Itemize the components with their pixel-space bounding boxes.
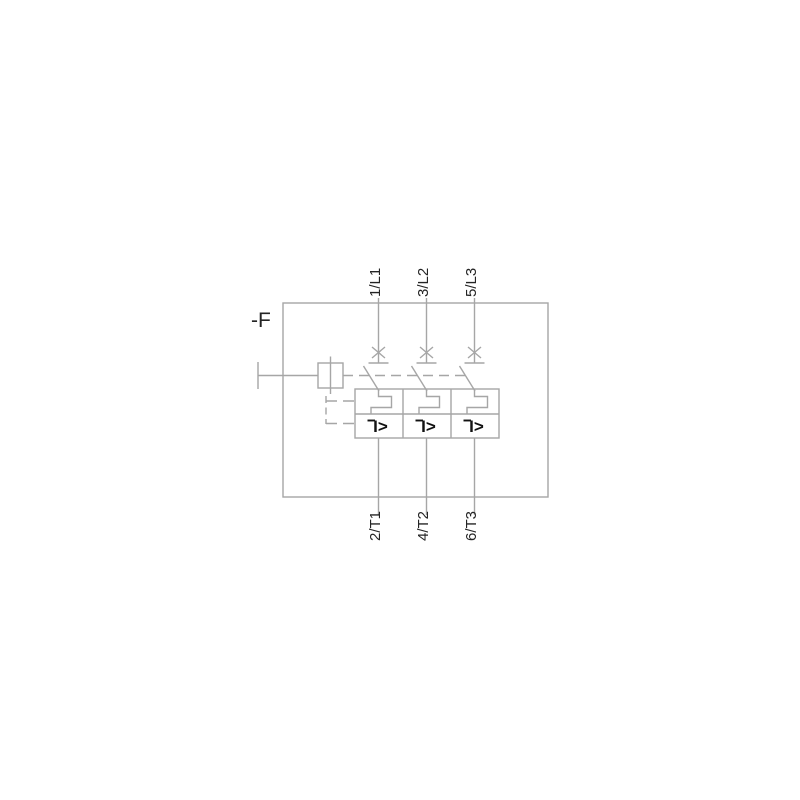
pole-3: I> 5/L3 6/T3 (460, 268, 488, 541)
overcurrent-symbol: I> (421, 417, 436, 436)
top-terminal-label: 1/L1 (367, 268, 384, 297)
switch-blade (460, 366, 476, 391)
bottom-terminal-label: 2/T1 (367, 511, 384, 541)
overcurrent-symbol: I> (373, 417, 388, 436)
bottom-terminal-label: 6/T3 (463, 511, 480, 541)
thermal-overload-element (467, 389, 488, 414)
top-terminal-label: 3/L2 (415, 268, 432, 297)
circuit-diagram: -F I> 1/L1 2/T1 I> 3/L2 4/T2 (0, 0, 800, 800)
thermal-overload-element (419, 389, 440, 414)
switch-blade (364, 366, 380, 391)
switch-blade (412, 366, 428, 391)
top-terminal-label: 5/L3 (463, 268, 480, 297)
thermal-overload-element (371, 389, 392, 414)
schematic-page: -F I> 1/L1 2/T1 I> 3/L2 4/T2 (0, 0, 800, 800)
pole-2: I> 3/L2 4/T2 (412, 268, 440, 541)
operator-handle-shaft (258, 362, 318, 389)
device-designation-label: -F (251, 309, 271, 332)
breaker-enclosure-outline (283, 303, 548, 497)
bottom-terminal-label: 4/T2 (415, 511, 432, 541)
pole-1: I> 1/L1 2/T1 (364, 268, 392, 541)
overcurrent-symbol: I> (469, 417, 484, 436)
